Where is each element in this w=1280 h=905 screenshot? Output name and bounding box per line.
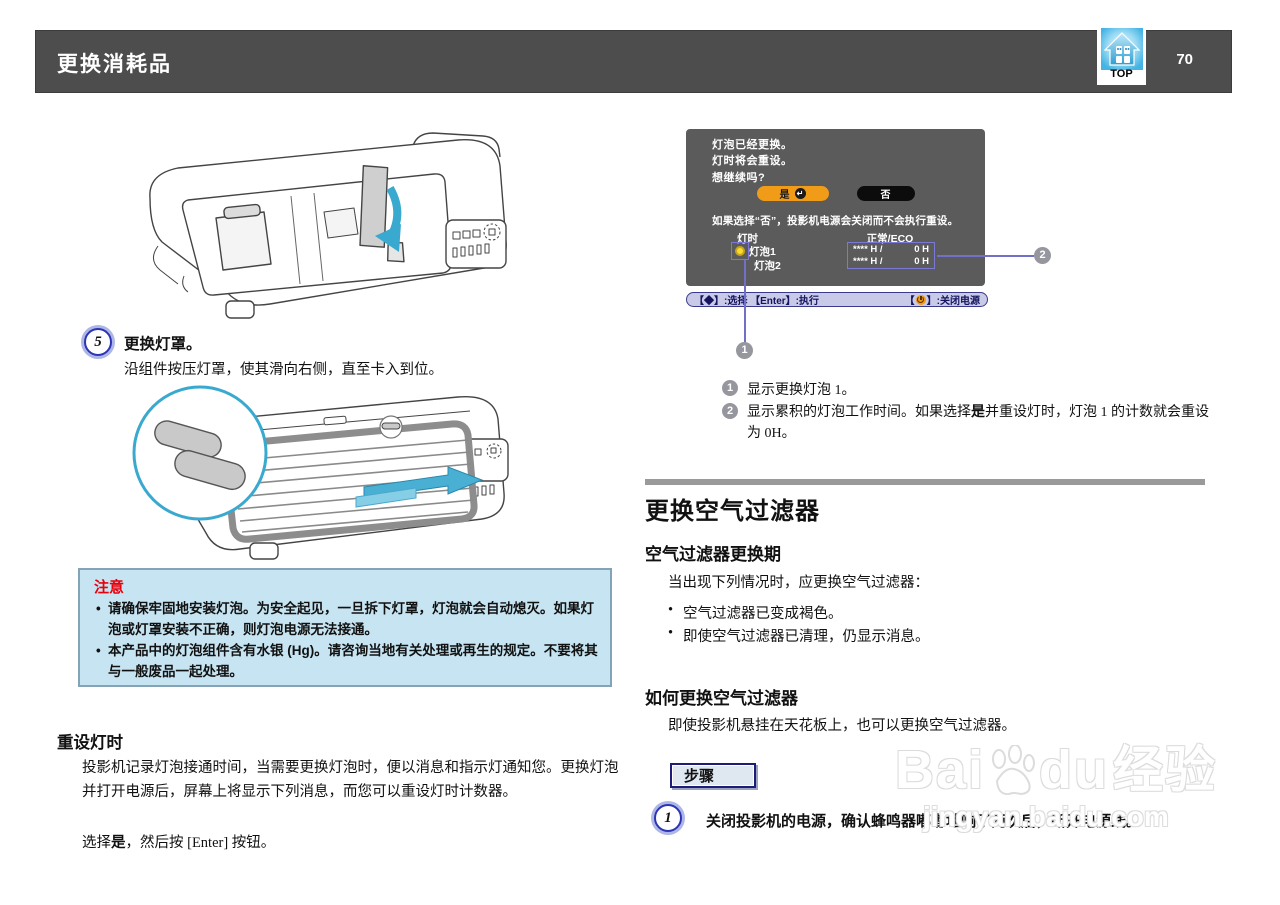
callout-line-1	[744, 260, 746, 342]
filter-how-intro: 即使投影机悬挂在天花板上，也可以更换空气过滤器。	[668, 714, 1016, 735]
top-label: TOP	[1097, 69, 1146, 80]
air-filter-section-title: 更换空气过滤器	[645, 491, 820, 526]
section-divider	[645, 479, 1205, 485]
lamp-replace-icon-box	[731, 242, 749, 260]
page-title: 更换消耗品	[57, 48, 172, 78]
filter-how-heading: 如何更换空气过滤器	[645, 684, 798, 709]
procedure-label: 步骤	[672, 765, 714, 786]
filter-period-intro: 当出现下列情况时，应更换空气过滤器：	[668, 571, 929, 592]
step-5-title: 更换灯罩。	[124, 332, 202, 354]
top-link[interactable]: TOP	[1097, 27, 1146, 85]
osd-message-screenshot: 灯泡已经更换。 灯时将会重设。 想继续吗? 是 ↵ 否 如果选择“否”，投影机电…	[686, 129, 985, 286]
osd-lamp2-hours: **** H / 0 H	[853, 257, 929, 267]
reset-lamp-hours-paragraph: 投影机记录灯泡接通时间，当需要更换灯泡时，便以消息和指示灯通知您。更换灯泡并打开…	[82, 756, 622, 805]
osd-message-text: 灯泡已经更换。 灯时将会重设。 想继续吗?	[712, 137, 793, 186]
baidu-paw-icon	[989, 745, 1035, 795]
filter-condition-bullet: 空气过滤器已变成褐色。	[668, 602, 843, 623]
page-header-bar: 更换消耗品 70	[35, 30, 1232, 93]
keybar-right-text: 【】:关闭电源	[905, 292, 980, 307]
osd-yes-button: 是 ↵	[757, 186, 829, 201]
caution-title: 注意	[94, 576, 598, 597]
projector-cover-illustration	[128, 381, 528, 563]
caution-box: 注意 请确保牢固地安装灯泡。为安全起见，一旦拆下灯罩，灯泡就会自动熄灭。如果灯泡…	[78, 568, 612, 687]
annotation-2: 2 显示累积的灯泡工作时间。如果选择是并重设灯时，灯泡 1 的计数就会重设为 0…	[722, 402, 1218, 444]
procedure-label-box: 步骤	[670, 763, 756, 788]
enter-return-icon: ↵	[795, 188, 806, 199]
step-5-number: 5	[84, 328, 112, 356]
projector-lamp-illustration	[128, 126, 528, 326]
callout-line-2	[937, 255, 1034, 257]
callout-badge-1: 1	[736, 342, 753, 359]
filter-condition-bullet: 即使空气过滤器已清理，仍显示消息。	[668, 625, 930, 646]
step-1-text: 关闭投影机的电源，确认蜂鸣器嘟嘟地响了两次后，断开电源线。	[706, 810, 1211, 831]
osd-lamp2-label: 灯泡2	[754, 258, 781, 273]
home-icon	[1101, 28, 1143, 70]
power-icon	[916, 295, 926, 305]
osd-lamp1-label: 灯泡1	[749, 244, 776, 259]
keybar-left-text: 【◆】:选择 【Enter】:执行	[694, 292, 819, 307]
osd-note-text: 如果选择“否”，投影机电源会关闭而不会执行重设。	[712, 213, 958, 228]
step-1-number: 1	[654, 804, 682, 832]
osd-no-button: 否	[857, 186, 915, 201]
filter-period-heading: 空气过滤器更换期	[645, 540, 781, 565]
osd-lamp1-hours: **** H / 0 H	[853, 245, 929, 255]
osd-hours-box: **** H / 0 H **** H / 0 H	[847, 242, 935, 269]
annotation-1: 1 显示更换灯泡 1。	[722, 379, 856, 399]
osd-key-guide-bar: 【◆】:选择 【Enter】:执行 【】:关闭电源	[686, 292, 988, 307]
caution-bullet: 请确保牢固地安装灯泡。为安全起见，一旦拆下灯罩，灯泡就会自动熄灭。如果灯泡或灯罩…	[94, 599, 598, 641]
lamp-icon	[735, 246, 745, 256]
reset-lamp-hours-instruction: 选择是，然后按 [Enter] 按钮。	[82, 831, 275, 852]
caution-bullet: 本产品中的灯泡组件含有水银 (Hg)。请咨询当地有关处理或再生的规定。不要将其与…	[94, 641, 598, 683]
baidu-watermark-logo: Bai du 经验	[895, 742, 1225, 799]
step-5-body: 沿组件按压灯罩，使其滑向右侧，直至卡入到位。	[124, 358, 443, 379]
callout-badge-2: 2	[1034, 247, 1051, 264]
reset-lamp-hours-heading: 重设灯时	[57, 729, 123, 753]
page-number: 70	[1176, 51, 1193, 68]
